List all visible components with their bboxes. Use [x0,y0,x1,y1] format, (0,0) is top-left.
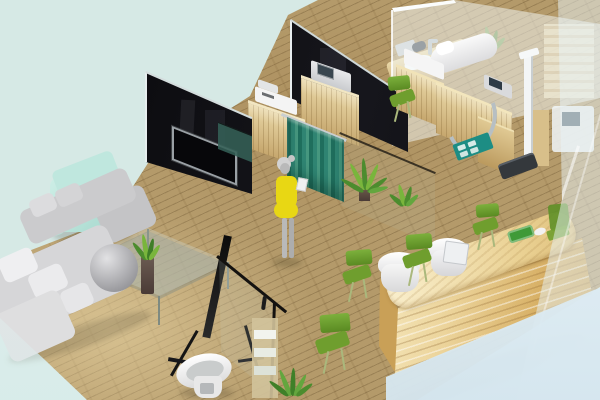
clinic-interior-render [0,0,600,400]
wall-edge-highlight [290,20,292,100]
towel [254,348,276,357]
ball-ottoman [90,244,138,292]
head [280,163,290,174]
towel [254,330,276,339]
dress [276,176,297,208]
towel [254,366,276,375]
vase [141,256,154,294]
chair-back [319,313,350,334]
mat-pad [459,150,468,157]
laptop [443,240,470,265]
flush-panel [200,383,214,394]
wall-edge-highlight [145,72,147,162]
shadow [272,258,302,267]
mat-pad [470,147,479,154]
leg [289,218,294,258]
measuring-column [524,54,533,166]
chair-back [345,249,372,266]
chair-back [475,203,499,218]
table-leg [158,296,160,325]
leg [282,218,287,258]
chair-back [405,233,432,250]
hair-bun [288,155,295,162]
